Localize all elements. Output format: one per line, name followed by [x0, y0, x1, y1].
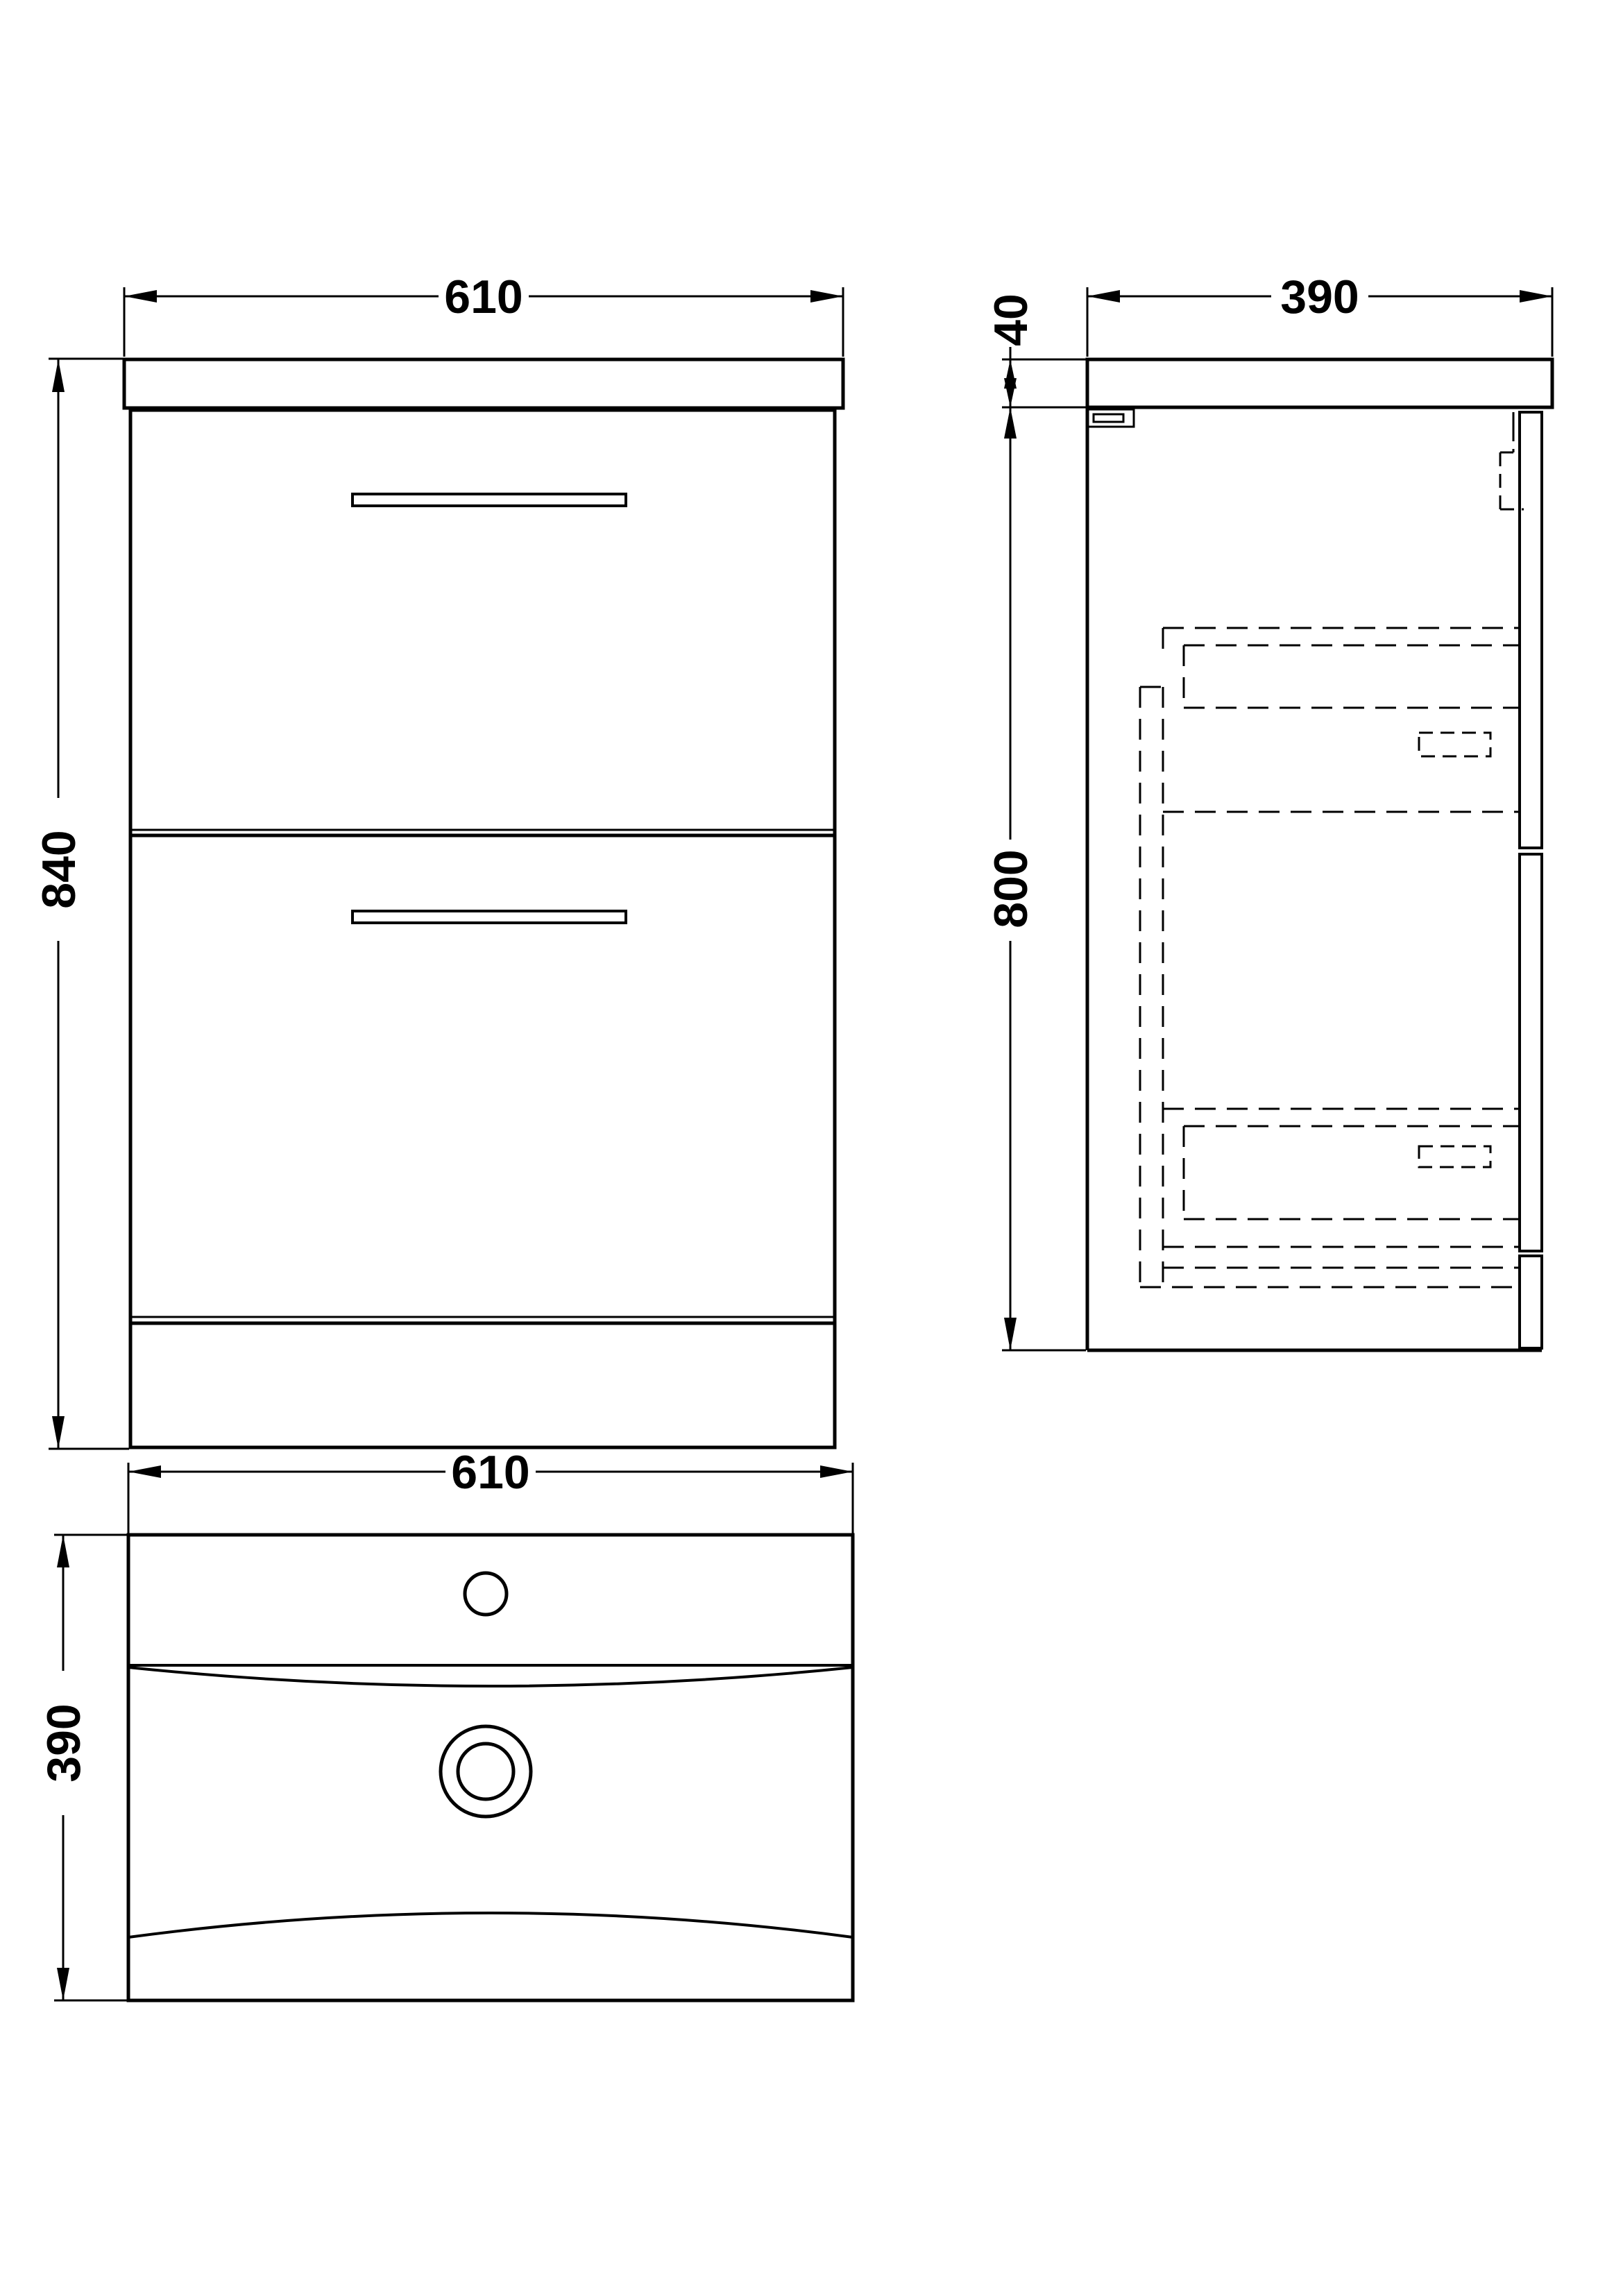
arrow-left [128, 1465, 161, 1478]
basin-back-curve [128, 1667, 853, 1686]
side-height-dimensions: 40 800 [985, 294, 1086, 1350]
arrow-left [1087, 290, 1120, 303]
basin-front-curve [128, 1913, 853, 1937]
drawer-runner [1419, 1146, 1490, 1167]
front-worktop [124, 359, 843, 408]
side-depth-label: 390 [1280, 271, 1359, 323]
waste-hole-outer [441, 1726, 531, 1817]
arrow-up [57, 1535, 69, 1567]
arrow-up-800 [1004, 407, 1017, 439]
fixing-bracket-outer [1088, 409, 1134, 427]
side-elevation-view: 390 40 800 [985, 271, 1552, 1350]
arrow-up [52, 359, 65, 392]
front-width-dimension: 610 [124, 271, 843, 357]
arrow-down-40 [1004, 378, 1017, 407]
lower-drawer-handle [352, 911, 626, 923]
arrow-right [1520, 290, 1552, 303]
vanity-unit-dimension-drawing: 610 840 [0, 0, 1623, 2296]
front-height-dimension: 840 [33, 359, 129, 1449]
plan-depth-dimension: 390 [37, 1535, 127, 2000]
front-elevation-view: 610 840 [33, 271, 843, 1449]
front-height-label: 840 [33, 830, 85, 908]
plan-depth-label: 390 [37, 1703, 90, 1782]
side-upper-drawer-front [1520, 412, 1542, 848]
arrow-right [820, 1465, 853, 1478]
plan-width-label: 610 [451, 1446, 529, 1499]
fixing-bracket-inner [1094, 414, 1123, 422]
arrow-down [57, 1968, 69, 2000]
hidden-lower-drawer-box [1140, 1109, 1520, 1287]
arrow-down-800 [1004, 1318, 1017, 1350]
drawer-runner [1419, 733, 1490, 756]
side-lower-drawer-front [1520, 854, 1542, 1251]
side-depth-dimension: 390 [1087, 271, 1552, 357]
side-worktop [1087, 359, 1552, 407]
hidden-upper-drawer-box [1163, 628, 1520, 812]
arrow-left [124, 290, 157, 303]
side-worktop-thickness-label: 40 [985, 294, 1037, 346]
plan-view: 610 390 [37, 1446, 853, 2000]
arrow-down [52, 1416, 65, 1449]
tap-hole [465, 1573, 507, 1615]
upper-drawer-handle [352, 494, 626, 506]
waste-hole-inner [458, 1744, 513, 1799]
plan-width-dimension: 610 [128, 1446, 853, 1533]
technical-drawing-sheet: 610 840 [0, 0, 1623, 2296]
hidden-back-channel [1140, 687, 1163, 1287]
front-width-label: 610 [444, 271, 522, 323]
side-plinth-front [1520, 1256, 1542, 1348]
side-cabinet-height-label: 800 [985, 849, 1037, 928]
front-cabinet-body [130, 410, 835, 1447]
basin-outline [128, 1535, 853, 2000]
arrow-right [810, 290, 843, 303]
